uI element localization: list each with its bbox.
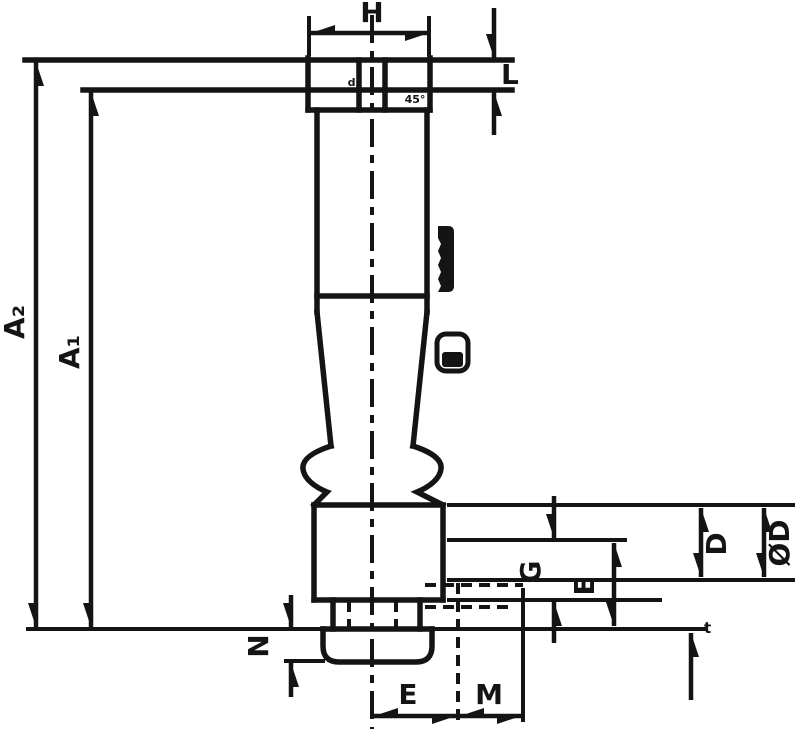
collar-left-profile [303,446,331,505]
part-outline [25,58,512,662]
taper-right-side [413,312,427,446]
flange-outline [323,629,432,662]
collar-right-profile [413,446,443,505]
taper-left-side [317,312,331,446]
label-A2: A₂ [0,305,31,339]
dimension-L: L [494,8,519,135]
dimension-M: M [460,678,521,716]
drawing-canvas: H L A₂ A₁ N E M G E [0,0,800,731]
dimension-OD: ØD [763,508,796,577]
label-d2: d₂ [348,76,361,89]
dimension-E-bottom: E [374,678,456,716]
label-OD: ØD [763,519,796,566]
label-L: L [501,58,519,91]
dimension-A1: A₁ [53,92,91,627]
label-N: N [242,634,275,657]
label-G: G [514,561,547,584]
extension-lines [26,16,795,722]
dimension-D: D [700,508,733,577]
label-M: M [475,678,503,711]
side-clip-fill [442,352,463,367]
dimension-E-side: E [568,543,614,626]
dimension-N: N [242,595,291,697]
dimension-drawing: H L A₂ A₁ N E M G E [0,0,800,731]
label-E-bottom: E [398,678,417,711]
label-D: D [700,532,733,555]
dimension-A2: A₂ [0,62,36,627]
shank-marking-strip [438,226,454,292]
dimension-t: t [691,619,711,700]
label-H: H [360,0,383,29]
label-chamfer: 45° [405,93,426,106]
dimension-G: G [514,496,554,643]
label-A1: A₁ [53,335,86,369]
dimension-H: H [311,0,429,33]
label-t: t [704,619,711,637]
label-E-side: E [568,576,601,595]
